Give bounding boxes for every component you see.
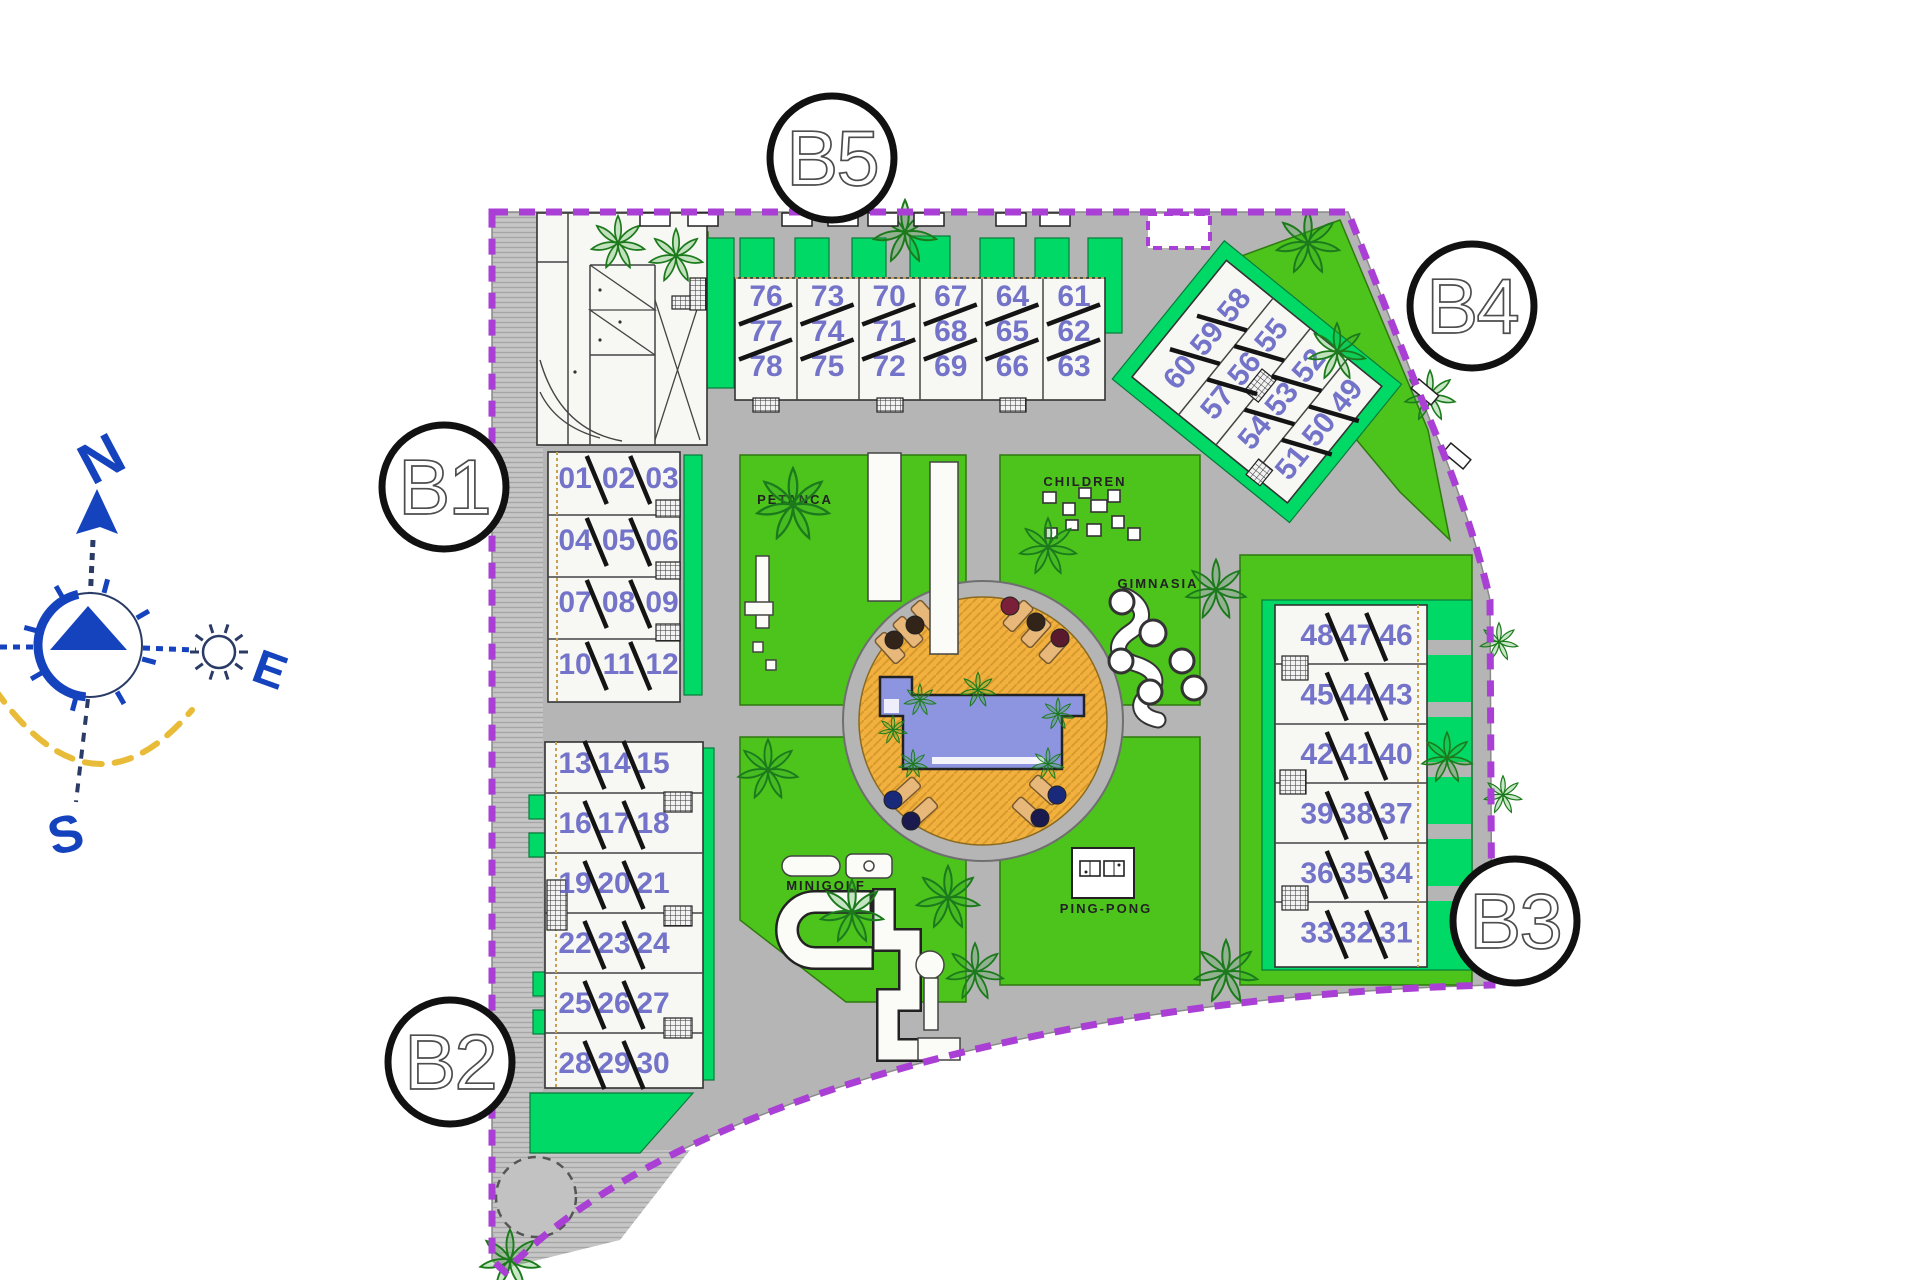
unit-number: 01 xyxy=(558,462,591,495)
sun-icon xyxy=(190,624,248,679)
block-b5-building: 767778737475707172676869646566616263 xyxy=(735,278,1105,412)
b5-terrace-strip xyxy=(980,238,1014,280)
unit-number: 12 xyxy=(645,648,678,681)
unit-number: 43 xyxy=(1379,679,1412,712)
badge-b5-label: B5 xyxy=(786,114,877,202)
unit-number: 36 xyxy=(1300,857,1333,890)
unit-number: 04 xyxy=(558,524,592,557)
unit-number: 39 xyxy=(1300,798,1333,831)
gimnasia-label: GIMNASIA xyxy=(1118,576,1199,591)
unit-number: 45 xyxy=(1300,679,1333,712)
compass-north-label: N xyxy=(68,420,136,497)
unit-number: 07 xyxy=(558,586,591,619)
unit-number: 31 xyxy=(1379,917,1412,950)
pool-steps xyxy=(884,699,899,713)
unit-number: 03 xyxy=(645,462,678,495)
unit-number: 35 xyxy=(1340,857,1373,890)
b5-terrace-strip xyxy=(795,238,829,280)
unit-number: 27 xyxy=(636,987,669,1020)
pingpong-label: PING-PONG xyxy=(1060,901,1152,916)
unit-number: 15 xyxy=(636,747,669,780)
compass-needle-icon xyxy=(76,489,118,534)
compass-south-label: S xyxy=(42,803,90,868)
utility-pad xyxy=(1148,214,1210,248)
children-label: CHILDREN xyxy=(1043,474,1126,489)
pingpong-area xyxy=(1072,848,1134,898)
unit-number: 24 xyxy=(636,927,670,960)
unit-number: 32 xyxy=(1340,917,1373,950)
unit-number: 06 xyxy=(645,524,678,557)
b5-terrace-strip xyxy=(852,238,886,280)
unit-number: 37 xyxy=(1379,798,1412,831)
unit-number: 40 xyxy=(1379,738,1412,771)
unit-number: 47 xyxy=(1340,619,1373,652)
b5-terrace-strip xyxy=(740,238,774,280)
badge-b2-label: B2 xyxy=(404,1018,495,1106)
badge-b3: B3 xyxy=(1453,859,1577,983)
block-b3-building: 484746454443424140393837363534333231 xyxy=(1275,605,1427,967)
sun-path-arc xyxy=(0,688,192,764)
badge-b1: B1 xyxy=(382,425,506,549)
unit-number: 21 xyxy=(636,867,669,900)
unit-number: 30 xyxy=(636,1047,669,1080)
compass-rose: N xyxy=(0,420,294,867)
badge-b4: B4 xyxy=(1410,244,1534,368)
unit-number: 05 xyxy=(602,524,635,557)
compass-east-label: E xyxy=(246,640,294,701)
badge-b1-label: B1 xyxy=(398,443,489,531)
unit-number: 09 xyxy=(645,586,678,619)
unit-number: 10 xyxy=(558,648,591,681)
unit-number: 02 xyxy=(602,462,635,495)
pool-lane xyxy=(932,757,1044,764)
pool-area xyxy=(843,581,1123,861)
b5-terrace-strip xyxy=(1035,238,1069,280)
unit-number: 11 xyxy=(603,648,635,681)
unit-number: 34 xyxy=(1379,857,1413,890)
block-b1-upper-building: 010203040506070809101112 xyxy=(548,452,680,702)
unit-number: 18 xyxy=(636,807,669,840)
block-b1-lower-building: 131415161718192021222324252627282930 xyxy=(545,741,703,1089)
unit-number: 46 xyxy=(1379,619,1412,652)
roundabout-dashed xyxy=(496,1157,576,1237)
b1-upper-emerald xyxy=(684,455,702,695)
badge-b5: B5 xyxy=(770,96,894,220)
unit-number: 38 xyxy=(1340,798,1373,831)
unit-number: 48 xyxy=(1300,619,1333,652)
badge-b3-label: B3 xyxy=(1469,877,1560,965)
unit-number: 08 xyxy=(602,586,635,619)
unit-number: 42 xyxy=(1300,738,1333,771)
unit-number: 33 xyxy=(1300,917,1333,950)
unit-number: 41 xyxy=(1340,738,1373,771)
site-plan: PETANCA CHILDREN GIMNASIA xyxy=(0,0,1920,1280)
badge-b4-label: B4 xyxy=(1426,262,1518,350)
badge-b2: B2 xyxy=(388,1000,512,1124)
